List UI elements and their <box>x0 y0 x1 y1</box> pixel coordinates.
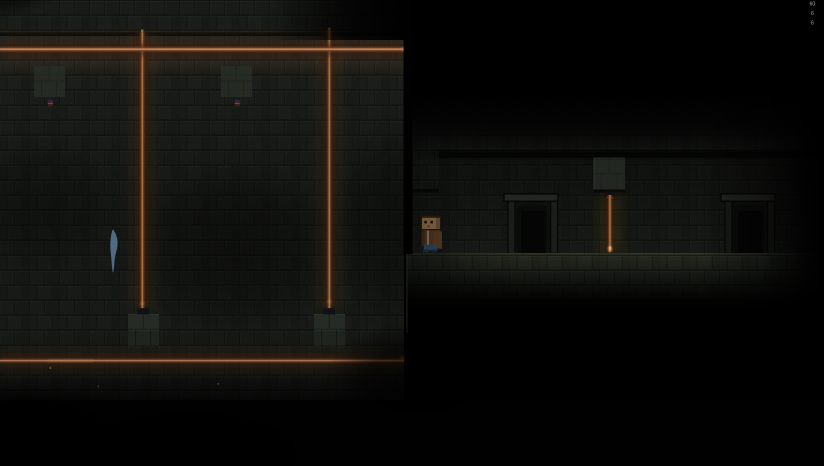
svg-text:6: 6 <box>811 21 814 27</box>
svg-text:6: 6 <box>811 11 814 17</box>
svg-text:60: 60 <box>810 2 816 8</box>
